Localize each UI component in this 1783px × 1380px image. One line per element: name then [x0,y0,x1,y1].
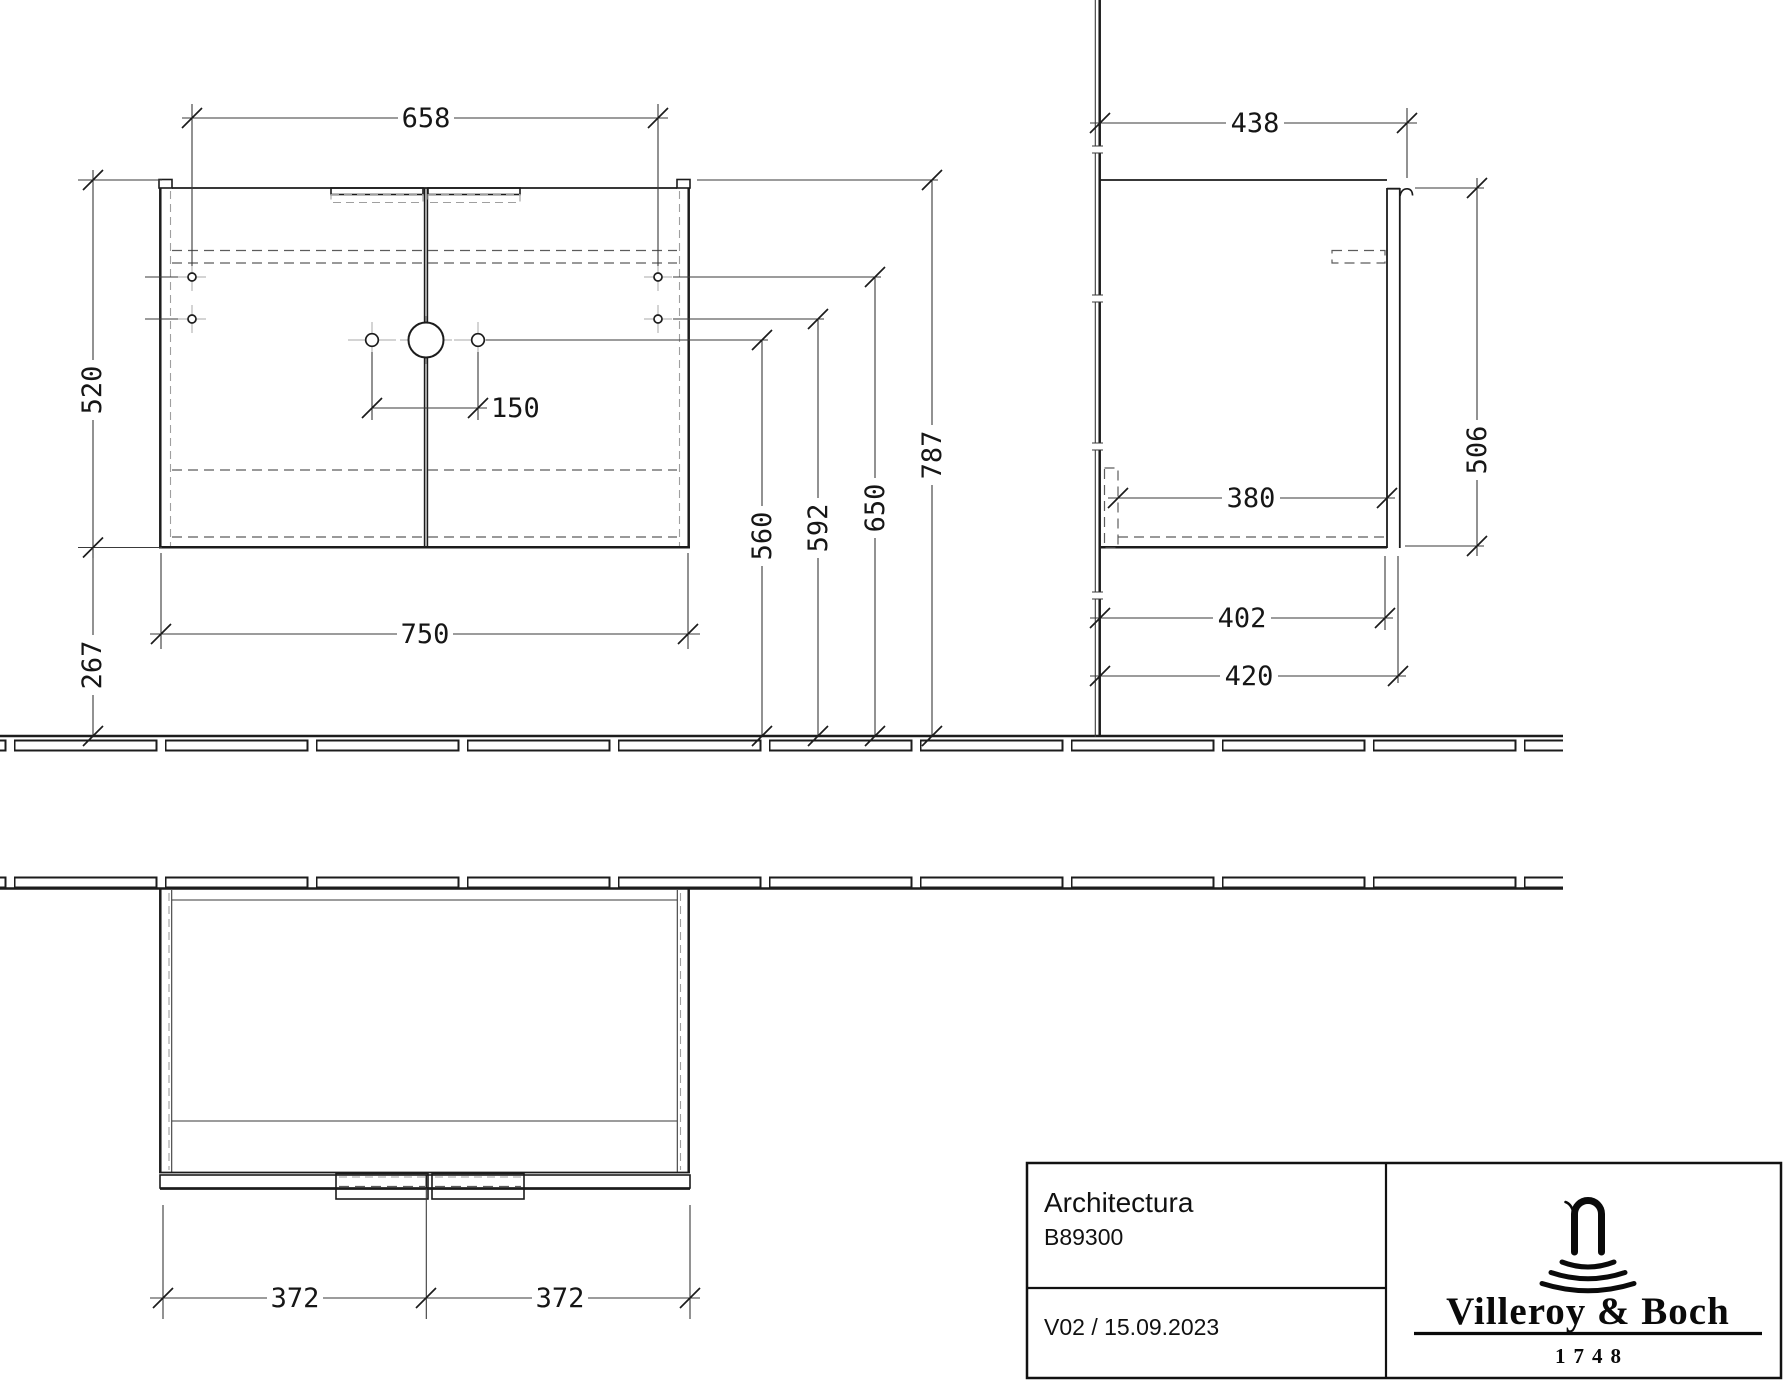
hidden-hinge-rail [1332,251,1385,264]
technical-drawing-sheet: 658 520 267 750 150 560 592 [0,0,1783,1380]
right-door-handle [428,188,520,195]
left-side-panel-top [159,180,172,189]
dim-label-420: 420 [1225,661,1274,692]
mounting-holes [145,263,672,333]
dim-label-658: 658 [402,103,451,134]
title-block: Architectura B89300 V02 / 15.09.2023 Vil… [1027,1163,1781,1378]
dim-label-372-right: 372 [536,1283,585,1314]
handle-profile [1400,189,1413,196]
dim-label-520: 520 [77,366,108,415]
version-date: V02 / 15.09.2023 [1044,1314,1219,1340]
side-panels-outer [160,888,688,1173]
dim-label-560: 560 [747,512,778,561]
left-door-handle [331,188,423,195]
dim-label-750: 750 [401,619,450,650]
door-split-line [425,188,428,547]
side-panels-inner [172,890,678,1173]
dim-label-372-left: 372 [271,1283,320,1314]
door-front-profile [1387,188,1400,548]
dim-label-592: 592 [803,504,834,553]
article-number: B89300 [1044,1224,1123,1250]
wall-mounting-bracket [1105,468,1119,548]
right-side-panel-top [677,180,690,189]
brand-wordmark: Villeroy & Boch [1446,1290,1730,1333]
wall-line-plan [0,877,1563,889]
dim-label-650: 650 [860,484,891,533]
side-panel-hidden-faces [169,893,681,1170]
right-door-handle-recess [428,195,520,203]
series-name: Architectura [1044,1187,1194,1218]
dim-label-787: 787 [917,431,948,480]
brand-year: 1748 [1555,1344,1629,1368]
floor-line-elevation [0,736,1563,752]
dim-label-380: 380 [1227,483,1276,514]
dim-label-267: 267 [77,641,108,690]
dim-label-402: 402 [1218,603,1267,634]
top-view [159,888,690,1199]
dim-label-150: 150 [491,393,540,424]
front-view [145,180,690,549]
dim-label-438: 438 [1231,108,1280,139]
front-view-dimensions: 658 520 267 750 150 560 592 [76,103,948,746]
side-view-dimensions: 438 506 380 402 420 [1090,108,1493,692]
tap-holes [348,316,502,364]
dim-label-506: 506 [1462,426,1493,475]
plan-handles [336,1174,524,1200]
wall-line [1092,0,1103,737]
drawing-canvas: 658 520 267 750 150 560 592 [0,0,1783,1380]
left-door-handle-recess [331,195,423,203]
top-view-dimensions: 372 372 [150,1189,700,1320]
